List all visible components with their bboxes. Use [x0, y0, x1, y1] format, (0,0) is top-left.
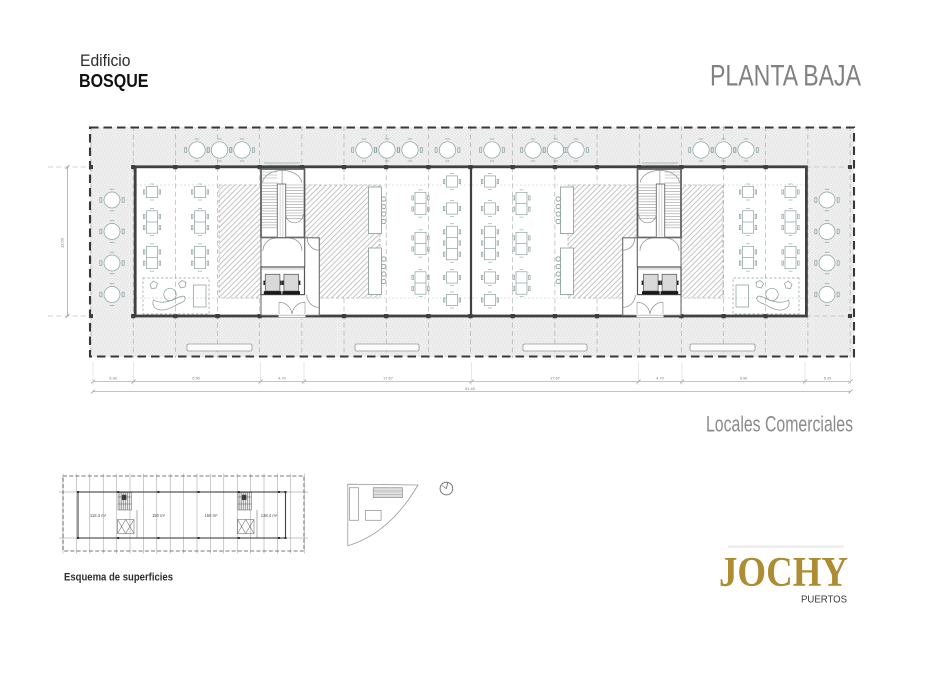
svg-text:Esquema de superficies: Esquema de superficies	[64, 572, 173, 584]
svg-text:5.20: 5.20	[824, 376, 832, 381]
svg-text:138.4 m²: 138.4 m²	[261, 513, 278, 518]
svg-text:BOSQUE: BOSQUE	[79, 71, 149, 91]
svg-text:5.90: 5.90	[192, 376, 200, 381]
svg-text:12.00: 12.00	[60, 237, 65, 248]
svg-text:150 m²: 150 m²	[204, 513, 218, 518]
svg-text:JOCHY: JOCHY	[719, 549, 848, 596]
svg-text:17.67: 17.67	[550, 376, 560, 381]
svg-text:PLANTA BAJA: PLANTA BAJA	[710, 60, 861, 93]
svg-text:4.70: 4.70	[278, 376, 286, 381]
svg-text:150 m²: 150 m²	[152, 513, 166, 518]
svg-text:118.3 m²: 118.3 m²	[90, 513, 107, 518]
svg-text:5.30: 5.30	[109, 376, 117, 381]
svg-text:4.70: 4.70	[656, 376, 664, 381]
svg-text:51.40: 51.40	[465, 386, 476, 391]
svg-text:Edificio: Edificio	[80, 52, 131, 70]
svg-text:Locales Comerciales: Locales Comerciales	[706, 412, 853, 437]
svg-text:17.67: 17.67	[383, 376, 393, 381]
svg-text:5.90: 5.90	[740, 376, 748, 381]
svg-text:PUERTOS: PUERTOS	[801, 595, 847, 606]
